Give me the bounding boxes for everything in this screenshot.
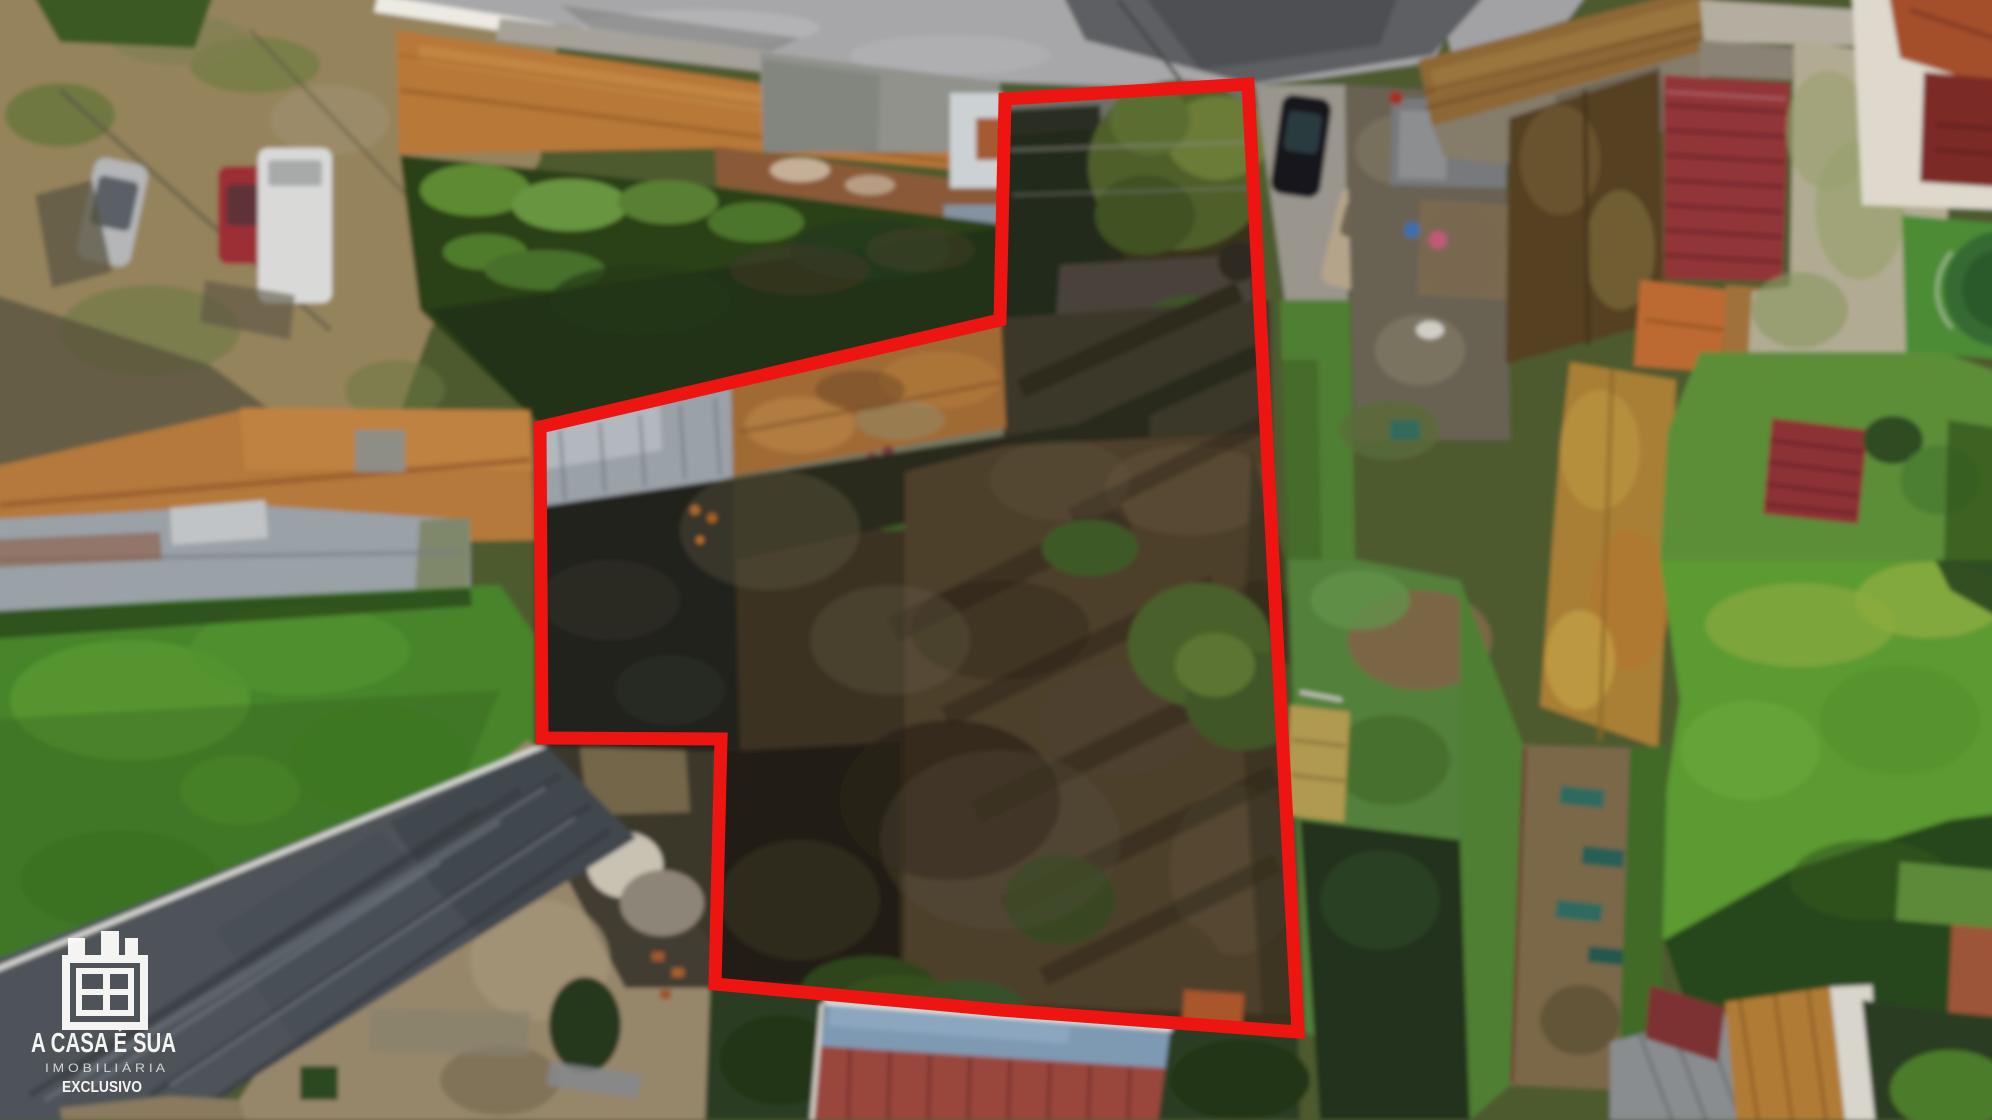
svg-text:EXCLUSIVO: EXCLUSIVO — [62, 1079, 142, 1096]
svg-text:I M O B I L I Á R I A: I M O B I L I Á R I A — [45, 1062, 165, 1075]
svg-text:A CASA É SUA: A CASA É SUA — [31, 1027, 176, 1058]
